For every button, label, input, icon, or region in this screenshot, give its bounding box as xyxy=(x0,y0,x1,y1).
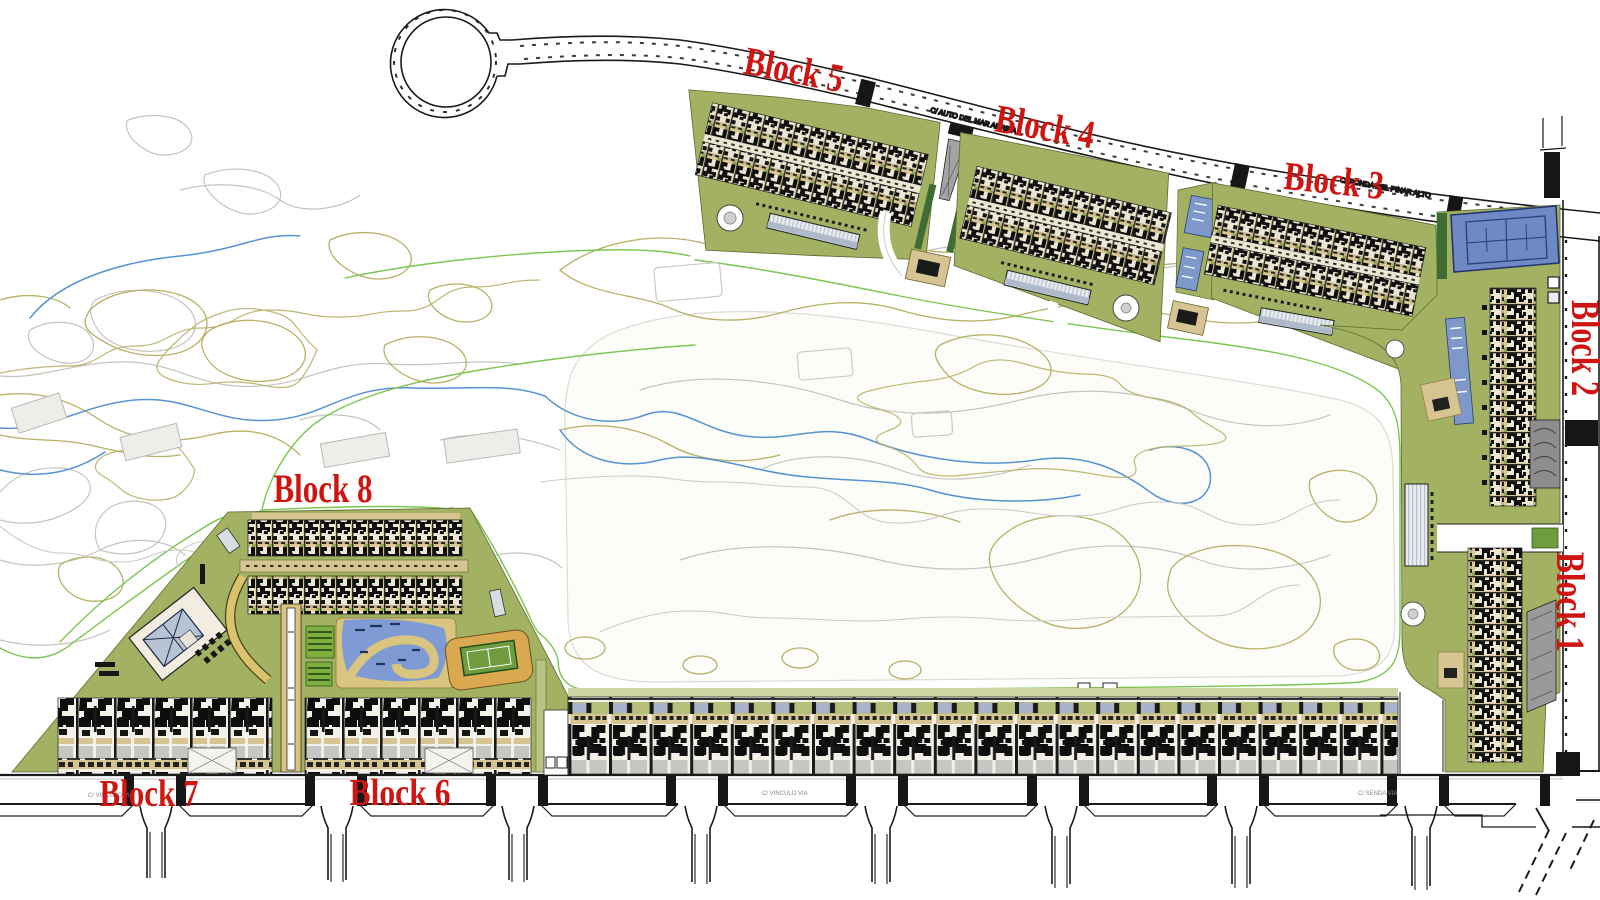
svg-text:Block 7: Block 7 xyxy=(100,773,199,815)
svg-text:C/ SENDA VIA: C/ SENDA VIA xyxy=(1358,791,1397,797)
svg-text:Block 2: Block 2 xyxy=(1563,300,1600,396)
svg-text:Block 1: Block 1 xyxy=(1548,552,1593,652)
svg-text:Block 6: Block 6 xyxy=(350,772,451,814)
svg-text:Block 8: Block 8 xyxy=(274,466,373,511)
svg-text:C/ VINCULO VIA: C/ VINCULO VIA xyxy=(762,791,808,797)
